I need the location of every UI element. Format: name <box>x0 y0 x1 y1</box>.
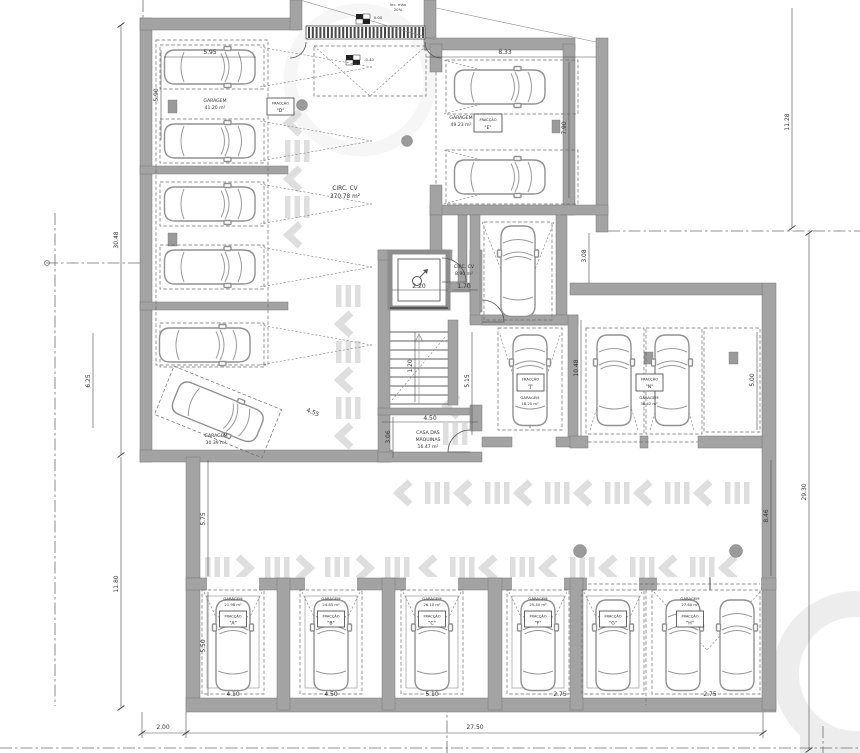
svg-text:FRACÇÃO: FRACÇÃO <box>272 101 289 106</box>
fraction-tag: FRACÇÃO "N" <box>636 374 663 391</box>
fraction-tag: FRACÇÃO "H" <box>677 611 704 627</box>
dim-label: 4.10 <box>226 691 240 698</box>
room-area: 18.25 m² <box>521 401 539 406</box>
room-area: 27.60 m² <box>681 602 699 607</box>
room-label-circ-core: CIRC. CV <box>454 264 475 270</box>
dim-label: 4.55 <box>305 407 320 419</box>
dim-label: 10.48 <box>573 359 580 376</box>
room-label-circ-main: CIRC. CV <box>332 186 357 192</box>
room-label-bay1: GARAGEM <box>223 596 242 601</box>
svg-text:FRACÇÃO: FRACÇÃO <box>224 614 241 619</box>
svg-text:"B": "B" <box>327 621 334 627</box>
svg-text:FRACÇÃO: FRACÇÃO <box>479 117 496 122</box>
svg-text:"G": "G" <box>609 621 617 627</box>
fraction-tag: FRACÇÃO "F" <box>525 611 552 627</box>
dim-label: 5.10 <box>425 691 439 698</box>
dim-label: 1.20 <box>407 359 414 373</box>
room-area: 26.10 m² <box>423 602 441 607</box>
car-topview <box>498 226 539 317</box>
fraction-tag: FRACÇÃO "G" <box>600 611 627 627</box>
level-marker-ramp: -0.40 <box>346 55 374 65</box>
dim-label: 6.25 <box>85 374 92 388</box>
car-topview <box>455 157 546 198</box>
car-topview <box>165 247 256 288</box>
room-label-garage-e: GARAGEM <box>449 115 472 121</box>
car-topview <box>165 121 256 162</box>
car-topview <box>165 184 256 225</box>
dim-label: 4.50 <box>423 415 437 422</box>
room-label-garage-diag: GARAGEM <box>204 433 227 439</box>
dim-label: 30.48 <box>113 231 120 248</box>
dim-label: 5.15 <box>464 374 471 388</box>
dim-label: 5.75 <box>200 512 207 526</box>
dim-label: 5.50 <box>200 639 207 653</box>
svg-text:"D": "D" <box>277 108 285 114</box>
svg-text:"H": "H" <box>686 621 694 627</box>
level-marker-street: 0.00 <box>356 14 383 24</box>
svg-text:"N": "N" <box>646 384 654 390</box>
room-label-garage-j: GARAGEM <box>520 395 539 400</box>
svg-text:FRACÇÃO: FRACÇÃO <box>529 614 546 619</box>
room-area: 41.20 m² <box>205 105 226 111</box>
room-label-bay4: GARAGEM <box>528 596 547 601</box>
svg-text:"C": "C" <box>428 621 435 627</box>
room-area: 30.39 m² <box>206 440 227 446</box>
dim-label: 11.80 <box>113 575 120 592</box>
room-area: 24.85 m² <box>322 602 340 607</box>
dim-label: 2.20 <box>412 283 426 290</box>
floor-plan-drawing: 0.00 -0.40 inc. máx 20% <box>0 0 860 753</box>
svg-text:FRACÇÃO: FRACÇÃO <box>423 614 440 619</box>
dim-label: 27.50 <box>466 724 483 731</box>
room-label-machine: CASA DAS <box>416 430 440 436</box>
dim-label: 7.90 <box>561 121 568 135</box>
room-label-bay6: GARAGEM <box>680 596 699 601</box>
dim-label: 5.90 <box>153 88 160 102</box>
room-area: 36.42 m² <box>640 401 658 406</box>
elevator <box>390 252 448 308</box>
svg-text:FRACÇÃO: FRACÇÃO <box>522 377 539 382</box>
dim-label: 8.46 <box>763 509 770 523</box>
svg-text:"F": "F" <box>535 621 542 627</box>
dim-label: 29.30 <box>801 483 808 500</box>
dim-label: 2.75 <box>553 691 567 698</box>
fraction-tag: FRACÇÃO "A" <box>220 611 247 627</box>
room-area: 21.98 m² <box>224 602 242 607</box>
level-ramp: -0.40 <box>364 57 374 62</box>
room-area: 25.40 m² <box>529 602 547 607</box>
room-label-bay2: GARAGEM <box>321 596 340 601</box>
svg-text:FRACÇÃO: FRACÇÃO <box>681 614 698 619</box>
dim-label: 1.70 <box>457 283 471 290</box>
dim-label: 11.28 <box>784 113 791 130</box>
room-label-garage-n: GARAGEM <box>639 395 658 400</box>
fraction-tag: FRACÇÃO "C" <box>419 611 446 627</box>
car-topview <box>455 67 546 108</box>
room-area: 49.23 m² <box>451 122 472 128</box>
car-topview <box>717 600 758 691</box>
svg-text:FRACÇÃO: FRACÇÃO <box>322 614 339 619</box>
dim-label: 2.00 <box>156 724 170 731</box>
svg-text:FRACÇÃO: FRACÇÃO <box>604 614 621 619</box>
dim-label: 3.06 <box>385 430 392 444</box>
dim-label: 5.00 <box>749 373 756 387</box>
room-area: 8.90 m² <box>455 271 473 277</box>
room-label-garage-d: GARAGEM <box>203 98 226 104</box>
floor-plan: 0.00 -0.40 inc. máx 20% <box>0 0 860 753</box>
dim-label: 4.50 <box>324 691 338 698</box>
dim-label: 2.75 <box>703 691 717 698</box>
car-topview <box>160 325 251 366</box>
svg-text:FRACÇÃO: FRACÇÃO <box>641 377 658 382</box>
svg-text:"A": "A" <box>229 621 236 627</box>
cars <box>160 47 758 691</box>
fraction-tag: FRACÇÃO "J" <box>517 374 544 391</box>
room-label-bay3: GARAGEM <box>422 596 441 601</box>
car-topview <box>594 335 635 426</box>
fraction-tag: FRACÇÃO "B" <box>318 611 345 627</box>
stairs <box>390 332 448 404</box>
fraction-tag: FRACÇÃO "E" <box>474 114 502 132</box>
dim-label: 3.08 <box>581 249 588 263</box>
dim-label: 8.33 <box>498 49 512 56</box>
ramp-slope-pct: 20% <box>394 7 403 12</box>
svg-text:"E": "E" <box>484 125 491 131</box>
room-label-machine-2: MÁQUINAS <box>416 436 441 443</box>
room-area: 370.78 m² <box>330 193 360 200</box>
fraction-tag: FRACÇÃO "D" <box>267 98 294 115</box>
level-street: 0.00 <box>374 15 383 20</box>
room-area: 16.47 m² <box>418 444 439 450</box>
dim-label: 5.95 <box>203 49 217 56</box>
svg-text:"J": "J" <box>528 384 534 390</box>
